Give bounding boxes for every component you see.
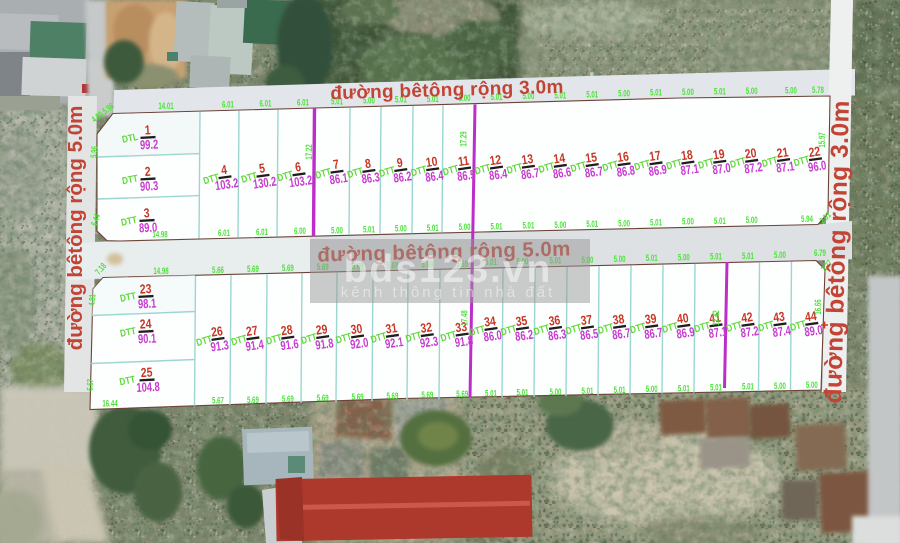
svg-text:36: 36 xyxy=(548,313,562,329)
svg-text:16: 16 xyxy=(616,149,630,165)
svg-text:15: 15 xyxy=(584,150,598,166)
svg-text:5.00: 5.00 xyxy=(682,217,694,228)
svg-text:5.78: 5.78 xyxy=(812,85,824,96)
svg-text:91.4: 91.4 xyxy=(245,338,266,354)
svg-text:5.67: 5.67 xyxy=(212,396,224,407)
svg-text:5.69: 5.69 xyxy=(456,389,468,400)
svg-text:86.2: 86.2 xyxy=(393,170,413,186)
svg-text:18: 18 xyxy=(680,148,694,164)
svg-text:4.81: 4.81 xyxy=(86,293,98,306)
svg-text:6.01: 6.01 xyxy=(222,99,234,110)
svg-text:6.67: 6.67 xyxy=(84,379,96,392)
svg-text:6.01: 6.01 xyxy=(256,227,268,238)
svg-text:5.00: 5.00 xyxy=(618,88,630,99)
svg-text:21: 21 xyxy=(776,145,790,161)
svg-text:5.01: 5.01 xyxy=(485,388,497,399)
svg-text:14.01: 14.01 xyxy=(158,101,174,112)
svg-text:5.01: 5.01 xyxy=(522,220,534,231)
svg-text:38: 38 xyxy=(612,312,626,328)
svg-text:86.8: 86.8 xyxy=(616,164,636,180)
svg-text:17.29: 17.29 xyxy=(458,131,469,146)
svg-text:5.00: 5.00 xyxy=(459,222,471,233)
svg-text:5.01: 5.01 xyxy=(714,86,726,97)
svg-text:14.98: 14.98 xyxy=(153,266,169,277)
svg-text:86.7: 86.7 xyxy=(611,327,631,343)
svg-text:5.00: 5.00 xyxy=(395,224,407,235)
svg-text:5.01: 5.01 xyxy=(517,387,529,398)
svg-text:90.3: 90.3 xyxy=(140,180,159,195)
svg-text:5.00: 5.00 xyxy=(806,380,818,391)
svg-text:5.69: 5.69 xyxy=(282,394,294,405)
svg-text:98.1: 98.1 xyxy=(138,297,157,312)
svg-text:86.5: 86.5 xyxy=(456,168,476,184)
svg-text:29: 29 xyxy=(315,322,329,338)
svg-text:92.1: 92.1 xyxy=(384,336,404,352)
svg-text:19: 19 xyxy=(712,147,726,163)
svg-text:86.1: 86.1 xyxy=(329,172,349,188)
svg-text:26: 26 xyxy=(210,324,224,340)
svg-text:87.2: 87.2 xyxy=(740,325,760,341)
svg-text:17: 17 xyxy=(648,148,662,164)
svg-text:92.3: 92.3 xyxy=(419,335,439,351)
svg-text:23: 23 xyxy=(139,282,152,297)
svg-text:17.42: 17.42 xyxy=(711,310,722,325)
svg-text:5.01: 5.01 xyxy=(742,251,754,262)
svg-text:43: 43 xyxy=(772,309,786,325)
svg-text:30: 30 xyxy=(350,322,364,338)
svg-text:16.44: 16.44 xyxy=(102,398,118,409)
svg-text:17.48: 17.48 xyxy=(459,310,470,326)
svg-text:5.69: 5.69 xyxy=(247,264,259,275)
svg-text:5.69: 5.69 xyxy=(352,392,364,403)
svg-text:5.69: 5.69 xyxy=(421,390,433,401)
svg-text:5.69: 5.69 xyxy=(317,393,329,404)
svg-text:5.69: 5.69 xyxy=(386,391,398,402)
svg-text:89.0: 89.0 xyxy=(804,324,824,340)
svg-text:5.01: 5.01 xyxy=(586,89,598,100)
svg-text:5.01: 5.01 xyxy=(614,385,626,396)
svg-text:3: 3 xyxy=(143,206,150,221)
svg-text:86.7: 86.7 xyxy=(584,165,604,181)
svg-text:5.00: 5.00 xyxy=(785,85,797,96)
svg-text:5.00: 5.00 xyxy=(614,254,626,265)
svg-text:5.00: 5.00 xyxy=(774,250,786,261)
svg-text:5.00: 5.00 xyxy=(554,220,566,231)
svg-text:6.01: 6.01 xyxy=(297,97,309,108)
svg-text:86.7: 86.7 xyxy=(644,326,664,342)
svg-text:5.94: 5.94 xyxy=(801,214,813,225)
svg-text:17.22: 17.22 xyxy=(304,144,315,159)
svg-text:86.9: 86.9 xyxy=(676,326,696,342)
svg-text:12: 12 xyxy=(489,153,503,169)
svg-text:42: 42 xyxy=(740,310,754,326)
svg-text:37: 37 xyxy=(580,313,594,329)
svg-text:20: 20 xyxy=(744,146,758,162)
svg-text:5.00: 5.00 xyxy=(331,225,343,236)
svg-text:5.01: 5.01 xyxy=(646,253,658,264)
svg-text:14: 14 xyxy=(553,151,567,167)
svg-text:6.00: 6.00 xyxy=(294,226,306,237)
svg-text:86.3: 86.3 xyxy=(547,328,567,344)
svg-text:27: 27 xyxy=(245,323,259,339)
svg-text:25: 25 xyxy=(140,365,153,380)
svg-text:5.66: 5.66 xyxy=(212,265,224,276)
svg-text:5.00: 5.00 xyxy=(618,218,630,229)
svg-text:5.00: 5.00 xyxy=(678,252,690,263)
svg-text:5.01: 5.01 xyxy=(714,216,726,227)
svg-text:28: 28 xyxy=(280,323,294,339)
svg-text:5.01: 5.01 xyxy=(363,224,375,235)
svg-text:5.69: 5.69 xyxy=(282,263,294,274)
svg-text:91.3: 91.3 xyxy=(210,339,230,355)
svg-text:2: 2 xyxy=(144,165,151,180)
svg-text:10: 10 xyxy=(425,154,439,170)
svg-text:đường bêtông rộng 5.0m: đường bêtông rộng 5.0m xyxy=(64,106,87,351)
svg-text:5.01: 5.01 xyxy=(491,221,503,232)
svg-text:6.01: 6.01 xyxy=(260,98,272,109)
svg-text:5.96: 5.96 xyxy=(88,146,100,159)
svg-text:91.8: 91.8 xyxy=(315,337,335,353)
svg-text:87.2: 87.2 xyxy=(744,161,764,177)
svg-text:1: 1 xyxy=(144,123,151,138)
svg-text:5.00: 5.00 xyxy=(774,381,786,392)
svg-text:86.6: 86.6 xyxy=(552,166,572,182)
svg-text:31: 31 xyxy=(385,321,399,337)
svg-text:86.3: 86.3 xyxy=(361,171,381,187)
svg-text:96.0: 96.0 xyxy=(807,159,827,175)
svg-text:91.6: 91.6 xyxy=(280,337,300,353)
svg-text:86.5: 86.5 xyxy=(579,327,599,343)
svg-text:5.01: 5.01 xyxy=(742,381,754,392)
svg-text:87.0: 87.0 xyxy=(712,162,732,178)
svg-text:5.01: 5.01 xyxy=(650,88,662,99)
svg-text:34: 34 xyxy=(483,314,497,330)
svg-text:86.7: 86.7 xyxy=(520,167,540,183)
svg-text:32: 32 xyxy=(420,320,434,336)
svg-text:5.00: 5.00 xyxy=(550,387,562,398)
svg-text:6.01: 6.01 xyxy=(218,228,230,239)
svg-text:99.2: 99.2 xyxy=(140,138,159,153)
svg-text:86.0: 86.0 xyxy=(483,329,503,345)
svg-text:5.69: 5.69 xyxy=(247,395,259,406)
svg-text:39: 39 xyxy=(644,311,658,327)
svg-text:13: 13 xyxy=(521,152,535,168)
svg-text:5.00: 5.00 xyxy=(746,86,758,97)
svg-text:5.01: 5.01 xyxy=(650,217,662,228)
svg-text:87.1: 87.1 xyxy=(708,325,728,341)
svg-text:86.2: 86.2 xyxy=(514,328,534,344)
svg-text:5.00: 5.00 xyxy=(646,384,658,395)
svg-text:5.01: 5.01 xyxy=(710,251,722,262)
svg-text:5.01: 5.01 xyxy=(586,219,598,230)
svg-text:90.1: 90.1 xyxy=(138,332,157,347)
svg-text:5.00: 5.00 xyxy=(682,87,694,98)
svg-text:87.1: 87.1 xyxy=(680,162,700,178)
svg-text:5.01: 5.01 xyxy=(710,382,722,393)
svg-text:35: 35 xyxy=(515,314,529,330)
svg-text:5.01: 5.01 xyxy=(427,223,439,234)
svg-text:86.9: 86.9 xyxy=(648,163,668,179)
svg-text:40: 40 xyxy=(676,311,690,327)
svg-text:5.00: 5.00 xyxy=(746,215,758,226)
svg-text:104.8: 104.8 xyxy=(136,381,160,396)
svg-text:87.1: 87.1 xyxy=(775,160,795,176)
svg-text:14.98: 14.98 xyxy=(152,229,168,240)
svg-text:5.01: 5.01 xyxy=(582,386,594,397)
svg-text:92.0: 92.0 xyxy=(349,336,369,352)
svg-text:5.01: 5.01 xyxy=(678,383,690,394)
svg-text:kênh thông tin nhà đất: kênh thông tin nhà đất xyxy=(341,284,555,301)
svg-text:24: 24 xyxy=(139,317,152,332)
